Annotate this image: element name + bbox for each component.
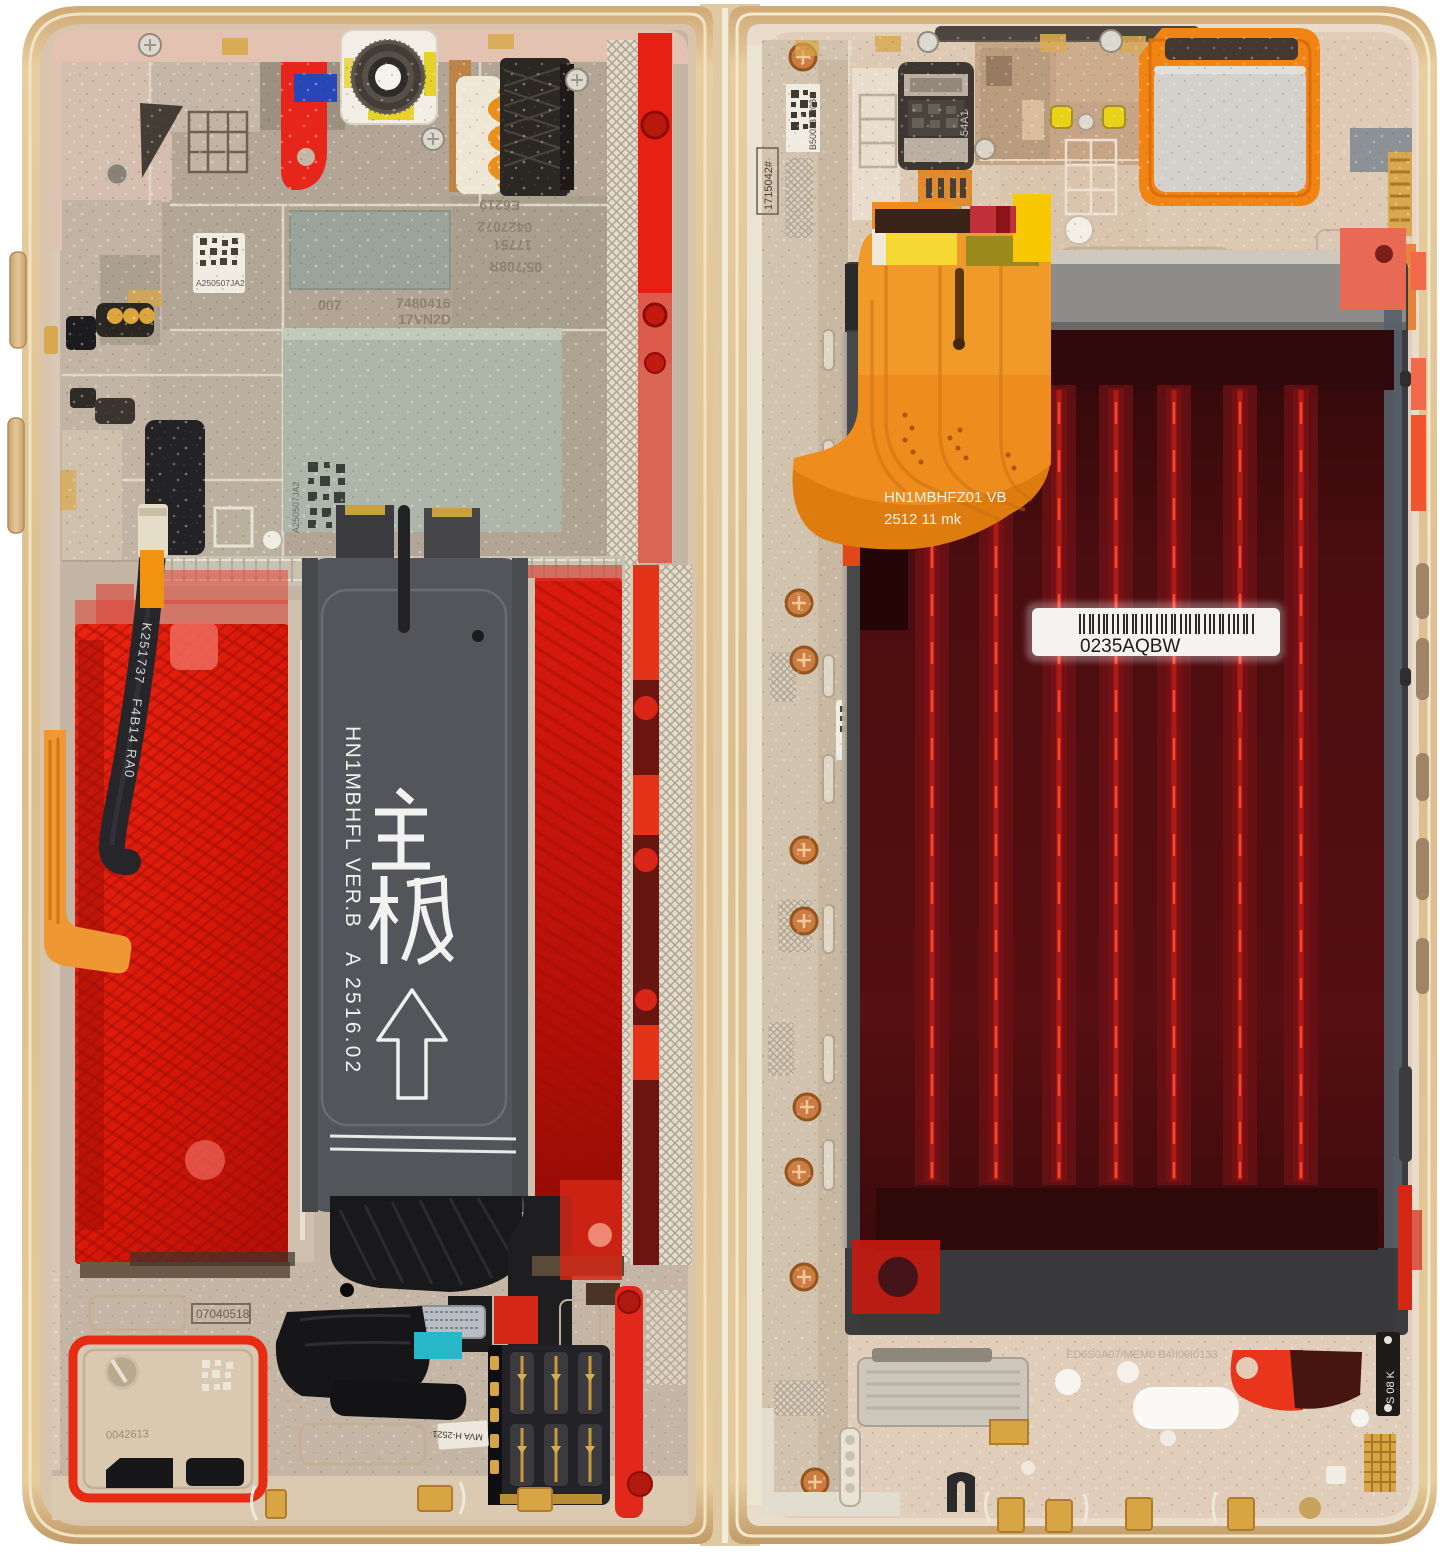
svg-text:S 08 K: S 08 K: [1385, 1370, 1397, 1404]
svg-text:A 2516.02: A 2516.02: [341, 952, 364, 1075]
svg-text:HN1MBHFL VER.B: HN1MBHFL VER.B: [341, 726, 364, 928]
svg-text:2512 11 mk: 2512 11 mk: [884, 511, 962, 528]
svg-text:ED6S0A07/MEM0 B4II09I0133: ED6S0A07/MEM0 B4II09I0133: [1066, 1349, 1218, 1361]
svg-text:0042613: 0042613: [106, 1428, 149, 1441]
svg-text:HN1MBHFZ01 VB: HN1MBHFZ01 VB: [884, 489, 1007, 506]
svg-text:0235AQBW: 0235AQBW: [1080, 636, 1180, 657]
svg-text:07040518: 07040518: [196, 1307, 250, 1321]
